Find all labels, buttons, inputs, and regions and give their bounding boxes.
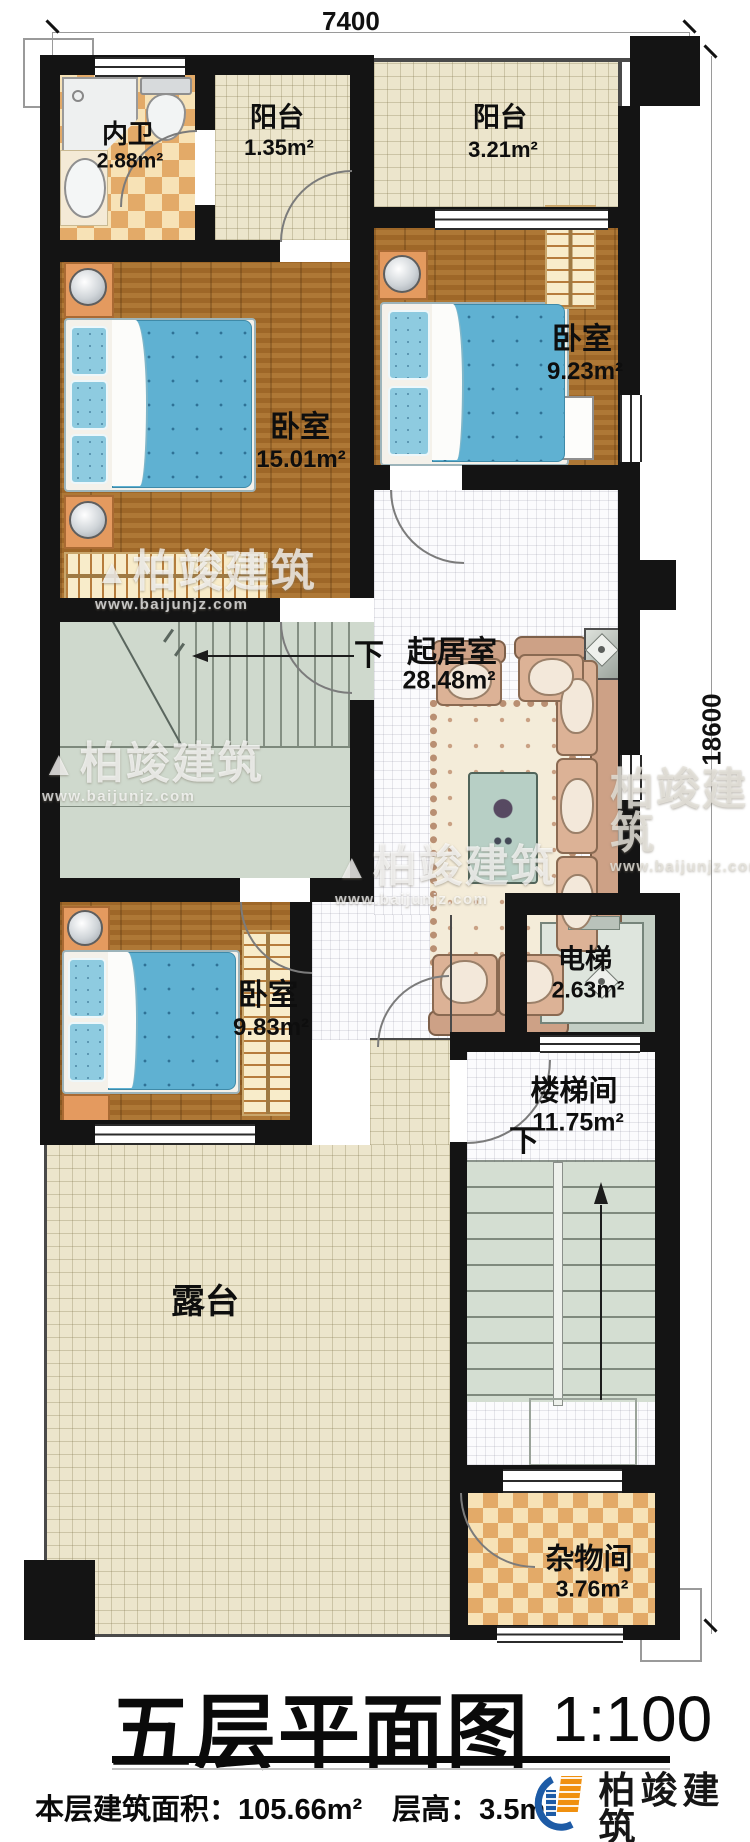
watermark-brand: 柏竣建筑 bbox=[133, 550, 317, 594]
floor-plan-page: 7400 18600 bbox=[0, 0, 750, 1842]
wall bbox=[462, 465, 618, 490]
watermark: 柏竣建筑 www.baijunjz.com bbox=[610, 768, 750, 874]
watermark-brand: 柏竣建筑 bbox=[610, 768, 750, 856]
extension-line bbox=[52, 32, 53, 56]
terrace-floor bbox=[370, 1040, 450, 1145]
bed-blanket-fold bbox=[432, 304, 464, 460]
watermark: ▲柏竣建筑 www.baijunjz.com bbox=[335, 845, 557, 907]
watermark-url: www.baijunjz.com bbox=[610, 859, 750, 874]
bed-blanket-fold bbox=[112, 320, 148, 486]
watermark-mountain-icon: ▲ bbox=[42, 747, 76, 781]
stair-direction-arrow bbox=[594, 1182, 608, 1204]
wall bbox=[40, 240, 280, 262]
window bbox=[95, 57, 185, 77]
balcony-rail bbox=[618, 58, 622, 108]
room-label-bedroom1: 卧室 bbox=[270, 413, 330, 443]
company-logo-icon bbox=[534, 1772, 590, 1832]
watermark-mountain-icon: ▲ bbox=[335, 850, 369, 884]
watermark-brand: 柏竣建筑 bbox=[80, 742, 264, 786]
stair-direction-line bbox=[600, 1205, 602, 1400]
bed-pillow bbox=[68, 1022, 106, 1082]
elevator-door bbox=[540, 1035, 640, 1053]
floor-area-text: 本层建筑面积：105.66m² bbox=[35, 1786, 362, 1828]
table-lamp bbox=[67, 910, 103, 946]
room-label-elevator: 电梯 bbox=[558, 947, 612, 974]
wall bbox=[350, 55, 374, 262]
watermark: ▲柏竣建筑 www.baijunjz.com bbox=[95, 550, 317, 612]
watermark-url: www.baijunjz.com bbox=[95, 597, 317, 612]
title-underline-shadow bbox=[112, 1768, 670, 1770]
wall bbox=[40, 55, 350, 75]
wall bbox=[195, 75, 215, 130]
table-lamp bbox=[69, 268, 107, 306]
room-area-bedroom3: 9.83m² bbox=[233, 1016, 309, 1040]
watermark-brand: 柏竣建筑 bbox=[373, 845, 557, 889]
wall bbox=[350, 262, 374, 598]
window bbox=[503, 1469, 622, 1493]
wall bbox=[374, 465, 390, 490]
pilaster bbox=[640, 560, 676, 610]
room-label-stairhall: 楼梯间 bbox=[530, 1078, 617, 1107]
room-label-storage: 杂物间 bbox=[545, 1546, 632, 1575]
stair-landing-outline bbox=[529, 1398, 637, 1466]
room-label-bedroom3: 卧室 bbox=[238, 981, 298, 1011]
title-underline bbox=[112, 1756, 670, 1763]
shower-drain bbox=[72, 90, 84, 102]
room-label-bathroom: 内卫 bbox=[102, 121, 154, 147]
armchair-pillow bbox=[528, 658, 574, 696]
bed-pillow bbox=[70, 326, 108, 376]
wall bbox=[195, 205, 215, 240]
logo-building-orange bbox=[557, 1776, 582, 1812]
stair-direction-line bbox=[208, 655, 354, 657]
company-name: 柏竣建筑 bbox=[598, 1772, 750, 1842]
wall bbox=[40, 878, 240, 902]
room-area-balcony2: 3.21m² bbox=[468, 139, 538, 161]
logo-building-blue bbox=[546, 1790, 556, 1816]
watermark-url: www.baijunjz.com bbox=[42, 789, 264, 804]
room-area-bathroom: 2.88m² bbox=[97, 151, 164, 172]
company-logo-text: 柏竣建筑 www.baijunjz.com bbox=[598, 1772, 750, 1842]
bed-pillow bbox=[388, 310, 430, 380]
watermark-mountain-icon: ▲ bbox=[95, 555, 129, 589]
room-label-living: 起居室 bbox=[407, 638, 497, 668]
balcony-rail bbox=[374, 58, 632, 62]
room-area-living: 28.48m² bbox=[402, 669, 495, 694]
room-label-terrace: 露台 bbox=[171, 1285, 239, 1319]
room-area-stairhall: 11.75m² bbox=[532, 1111, 624, 1136]
company-logo: 柏竣建筑 www.baijunjz.com bbox=[534, 1772, 750, 1842]
window bbox=[620, 395, 642, 462]
floor-edge bbox=[450, 915, 452, 1032]
room-label-bedroom2: 卧室 bbox=[552, 325, 612, 355]
column bbox=[630, 36, 700, 106]
watermark-url: www.baijunjz.com bbox=[335, 892, 557, 907]
bed-pillow bbox=[388, 386, 430, 456]
balcony2-floor bbox=[374, 62, 618, 207]
table-lamp bbox=[383, 255, 421, 293]
floor-height-text: 层高：3.5m bbox=[392, 1786, 545, 1828]
room-area-storage: 3.76m² bbox=[556, 1578, 629, 1601]
drawing-scale: 1:100 bbox=[552, 1682, 712, 1756]
stair-down-label: 下 bbox=[354, 641, 384, 671]
wall bbox=[450, 1142, 467, 1465]
wall bbox=[450, 1032, 467, 1060]
room-label-balcony1: 阳台 bbox=[250, 105, 304, 132]
bed-pillow bbox=[70, 380, 108, 430]
right-dimension-label: 18600 bbox=[697, 690, 728, 770]
room-label-balcony2: 阳台 bbox=[473, 105, 527, 132]
table-lamp bbox=[69, 501, 107, 539]
bed-pillow bbox=[70, 434, 108, 484]
side-table-lamp bbox=[598, 646, 605, 653]
stair-down-label: 下 bbox=[509, 1127, 539, 1157]
terrace-floor bbox=[46, 1145, 450, 1637]
terrace-rail bbox=[44, 1634, 450, 1637]
room-area-balcony1: 1.35m² bbox=[244, 137, 314, 159]
top-dimension-label: 7400 bbox=[322, 6, 380, 37]
column bbox=[24, 1560, 95, 1640]
floor-info: 本层建筑面积：105.66m² 层高：3.5m bbox=[35, 1786, 545, 1828]
stair-stringer bbox=[553, 1162, 563, 1406]
watermark: ▲柏竣建筑 www.baijunjz.com bbox=[42, 742, 264, 804]
stair-landing-edge bbox=[60, 806, 350, 807]
stair-direction-arrow bbox=[192, 650, 208, 662]
window bbox=[497, 1626, 623, 1643]
wall bbox=[655, 893, 680, 1640]
room-area-elevator: 2.63m² bbox=[552, 979, 625, 1002]
bed-blanket-fold bbox=[108, 952, 138, 1088]
sofa-pillow bbox=[560, 778, 594, 834]
window bbox=[435, 209, 608, 230]
bed-pillow bbox=[68, 958, 106, 1018]
window bbox=[95, 1124, 255, 1145]
room-area-bedroom1: 15.01m² bbox=[256, 448, 345, 472]
room-area-bedroom2: 9.23m² bbox=[547, 360, 623, 384]
